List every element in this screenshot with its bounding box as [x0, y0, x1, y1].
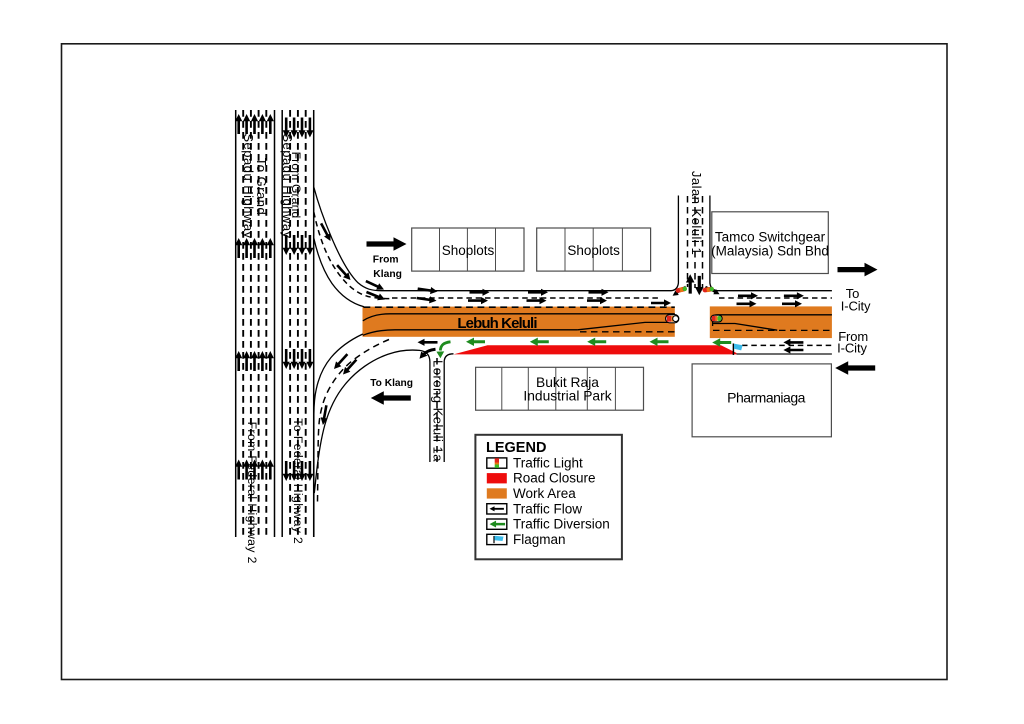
svg-text:Industrial Park: Industrial Park — [523, 388, 611, 403]
svg-text:Pharmaniaga: Pharmaniaga — [727, 390, 805, 406]
svg-text:Shoplots: Shoplots — [442, 243, 495, 258]
svg-text:Traffic Light: Traffic Light — [513, 456, 583, 471]
svg-text:To Klang: To Klang — [370, 378, 413, 389]
svg-text:Lorong Keluli 1a: Lorong Keluli 1a — [430, 360, 445, 462]
svg-text:Traffic Diversion: Traffic Diversion — [513, 517, 610, 532]
svg-text:LEGEND: LEGEND — [486, 440, 546, 456]
svg-text:Jalan Keluli 1: Jalan Keluli 1 — [689, 171, 704, 255]
svg-text:I-City: I-City — [837, 341, 867, 356]
svg-text:(Malaysia) Sdn Bhd: (Malaysia) Sdn Bhd — [711, 244, 829, 259]
svg-text:Sepadu Highway: Sepadu Highway — [241, 133, 256, 238]
svg-text:From Federal Highway 2: From Federal Highway 2 — [245, 422, 259, 564]
svg-text:From: From — [373, 255, 399, 266]
svg-text:Traffic Flow: Traffic Flow — [513, 501, 582, 516]
svg-text:Tamco Switchgear: Tamco Switchgear — [715, 230, 826, 245]
svg-text:Shoplots: Shoplots — [567, 243, 620, 258]
svg-text:Road Closure: Road Closure — [513, 471, 596, 486]
svg-text:Lebuh Keluli: Lebuh Keluli — [457, 315, 537, 332]
svg-text:Klang: Klang — [373, 269, 402, 280]
svg-text:Sepadu Highway: Sepadu Highway — [280, 133, 295, 238]
svg-text:Flagman: Flagman — [513, 532, 566, 547]
svg-text:To Federal Highway 2: To Federal Highway 2 — [291, 418, 305, 544]
svg-text:I-City: I-City — [841, 298, 871, 313]
svg-text:Work Area: Work Area — [513, 486, 576, 501]
